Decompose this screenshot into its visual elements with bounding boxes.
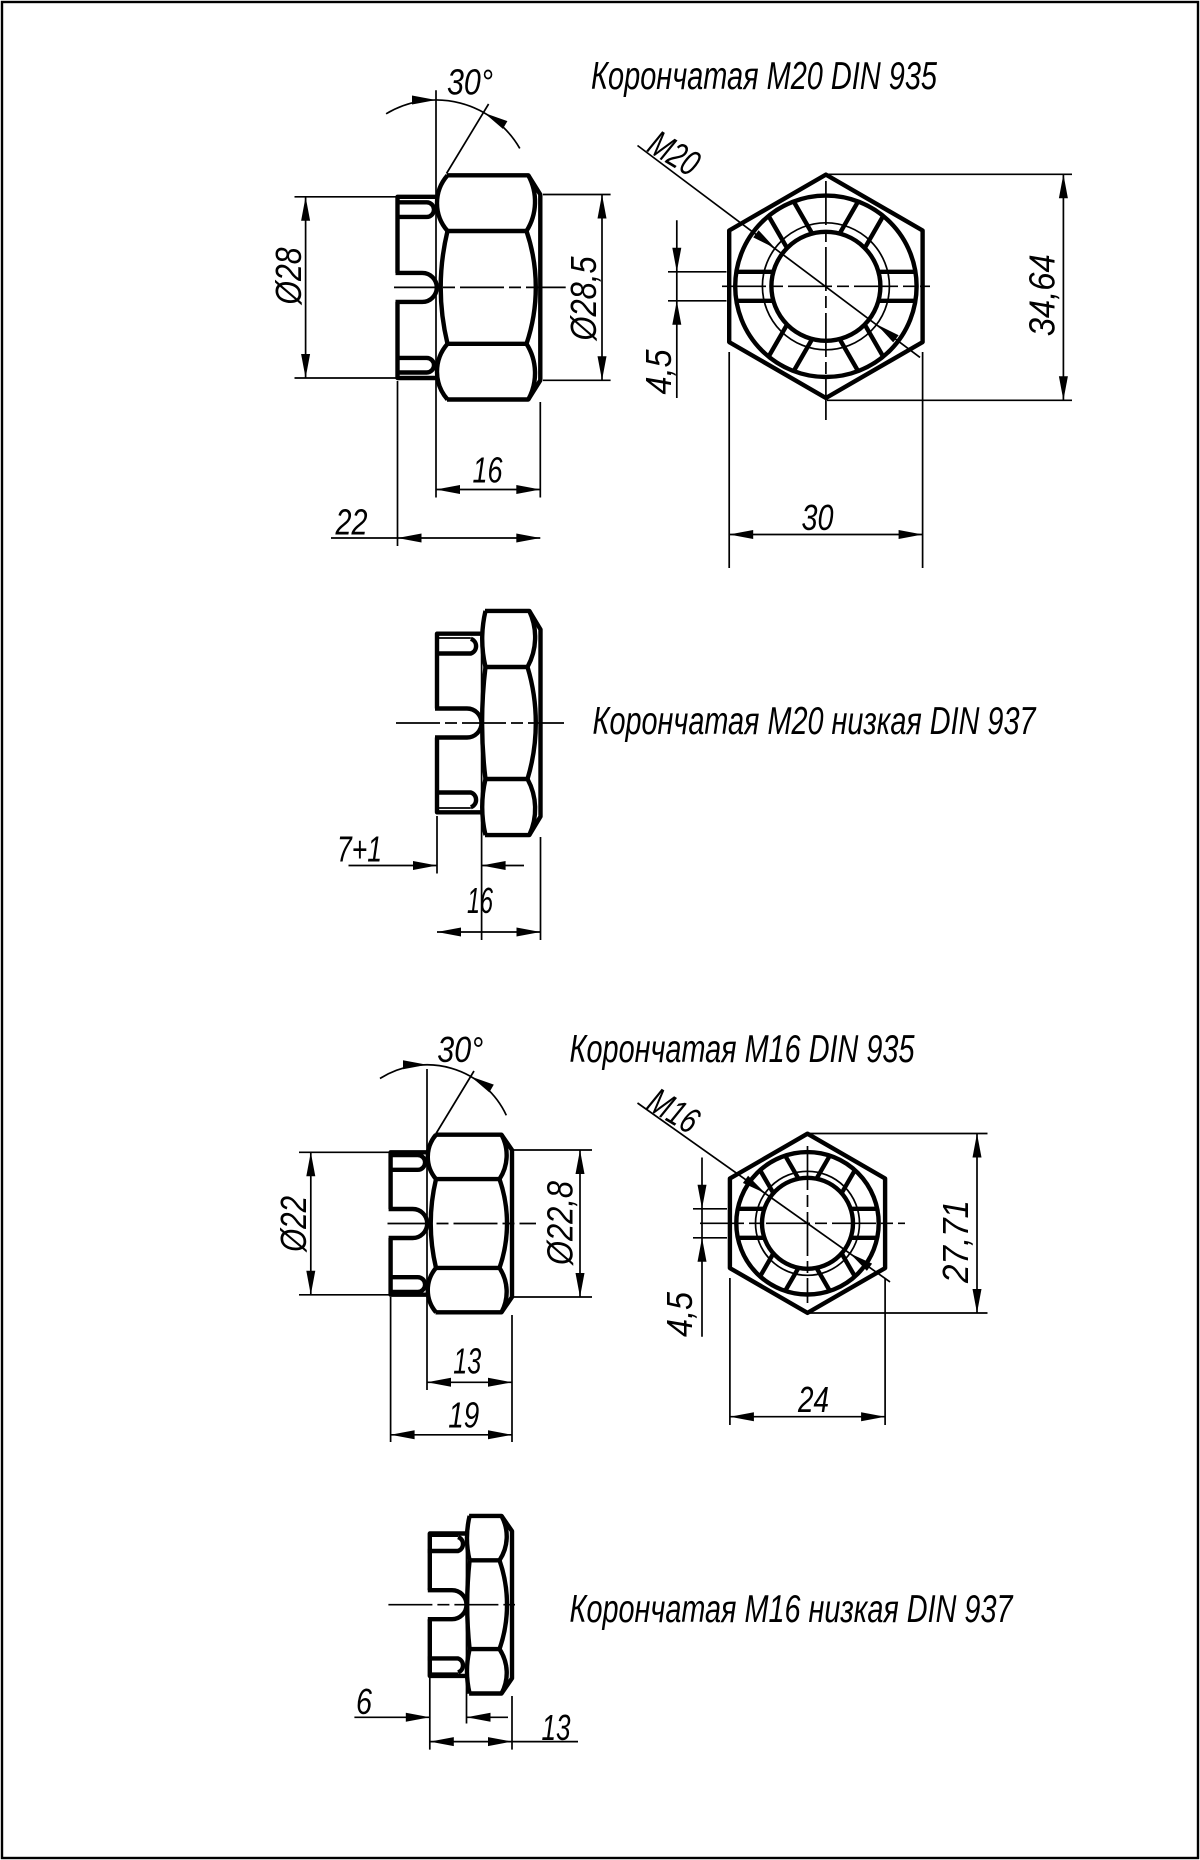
svg-text:16: 16 <box>467 880 493 921</box>
svg-text:22: 22 <box>335 502 368 543</box>
svg-text:30: 30 <box>802 497 834 538</box>
svg-text:Ø22: Ø22 <box>273 1196 314 1253</box>
svg-text:4,5: 4,5 <box>638 349 679 395</box>
svg-text:4,5: 4,5 <box>659 1291 700 1337</box>
svg-text:19: 19 <box>448 1394 479 1435</box>
svg-text:Ø28: Ø28 <box>268 247 309 305</box>
svg-text:24: 24 <box>797 1379 829 1420</box>
svg-text:30°: 30° <box>447 62 493 103</box>
svg-text:13: 13 <box>453 1341 481 1382</box>
svg-text:34,64: 34,64 <box>1022 254 1063 336</box>
svg-text:Корончатая М20 DIN 935: Корончатая М20 DIN 935 <box>591 55 937 98</box>
svg-text:30°: 30° <box>437 1029 483 1070</box>
svg-text:Корончатая М16 низкая DIN 937: Корончатая М16 низкая DIN 937 <box>570 1588 1014 1631</box>
svg-text:Корончатая М16 DIN 935: Корончатая М16 DIN 935 <box>570 1028 915 1071</box>
svg-text:7+1: 7+1 <box>337 829 382 870</box>
svg-text:Ø28,5: Ø28,5 <box>563 256 604 341</box>
svg-text:Ø22,8: Ø22,8 <box>540 1180 581 1265</box>
svg-text:27,71: 27,71 <box>935 1200 976 1284</box>
svg-text:6: 6 <box>356 1681 373 1722</box>
svg-text:13: 13 <box>542 1707 571 1748</box>
svg-text:16: 16 <box>473 449 504 490</box>
svg-text:Корончатая М20 низкая DIN 937: Корончатая М20 низкая DIN 937 <box>593 700 1037 743</box>
